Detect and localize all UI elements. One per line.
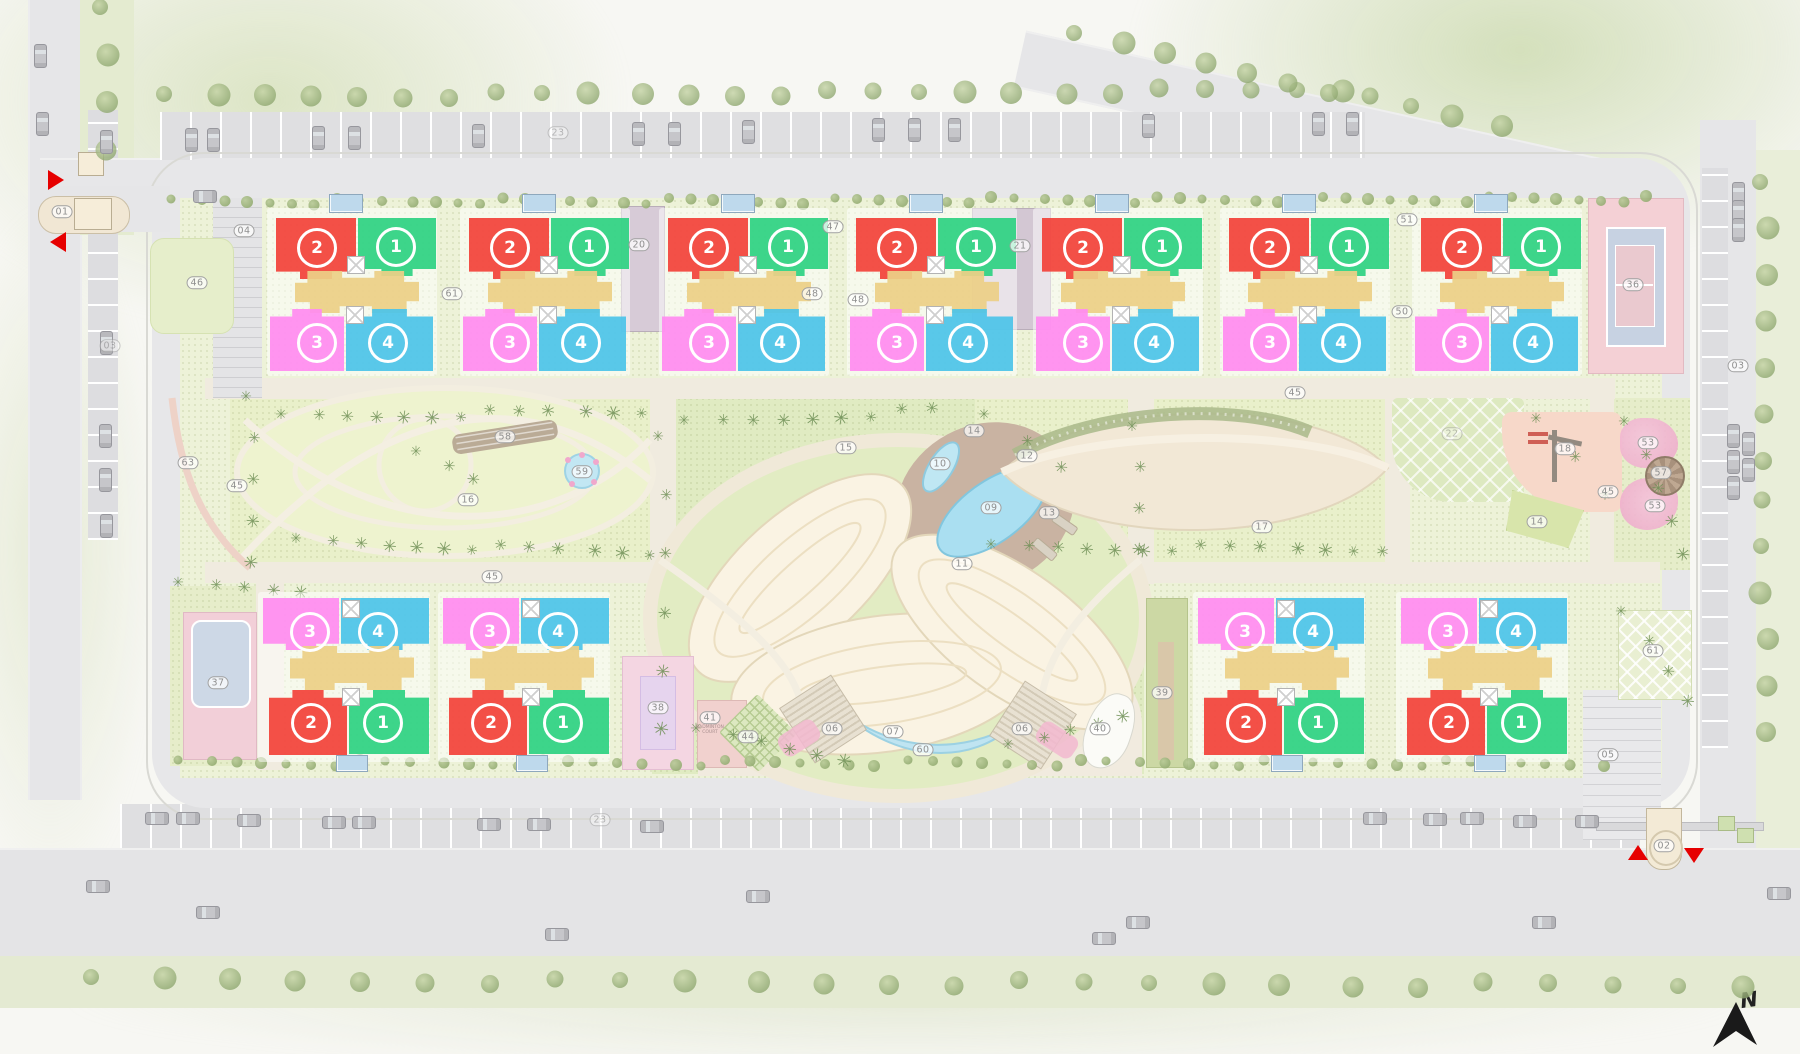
map-label-48: 48 xyxy=(848,293,869,306)
bush-icon xyxy=(903,756,912,765)
bush-icon xyxy=(1318,192,1328,202)
car-icon xyxy=(1767,887,1791,900)
entrance-canopy xyxy=(336,755,368,772)
palm-tree-icon: ✳ xyxy=(712,410,734,431)
map-label-21: 21 xyxy=(1010,239,1031,252)
stair-core xyxy=(1480,600,1498,618)
map-label-37: 37 xyxy=(208,676,229,689)
tree-icon xyxy=(1203,973,1226,996)
palm-tree-icon: ✳ xyxy=(419,404,446,430)
bush-icon xyxy=(1027,760,1037,770)
bush-icon xyxy=(896,195,908,207)
entrance-canopy xyxy=(1282,194,1316,213)
car-icon xyxy=(1532,916,1556,929)
map-label-13: 13 xyxy=(1039,506,1060,519)
stair-core xyxy=(1113,256,1131,274)
car-icon xyxy=(185,128,198,152)
palm-tree-icon: ✳ xyxy=(545,538,569,560)
bush-icon xyxy=(775,197,786,208)
palm-tree-icon: ✳ xyxy=(1221,535,1239,557)
palm-tree-icon: ✳ xyxy=(234,580,254,595)
stair-core xyxy=(342,688,360,706)
palm-tree-icon: ✳ xyxy=(743,412,763,427)
bush-icon xyxy=(686,193,697,204)
bush-icon xyxy=(745,756,756,767)
entrance-canopy xyxy=(1474,194,1508,213)
bush-icon xyxy=(1159,758,1170,769)
palm-tree-icon: ✳ xyxy=(923,397,941,419)
palm-tree-icon: ✳ xyxy=(1048,540,1068,555)
car-icon xyxy=(36,112,49,136)
stair-core xyxy=(347,256,365,274)
tree-icon xyxy=(879,975,899,995)
tree-icon xyxy=(350,972,370,992)
palm-tree-icon: ✳ xyxy=(240,389,252,405)
palm-tree-icon: ✳ xyxy=(978,407,990,423)
bush-icon xyxy=(976,757,988,769)
unit-badge-3: 3 xyxy=(490,323,530,363)
car-icon xyxy=(1727,476,1740,500)
palm-tree-icon: ✳ xyxy=(1060,723,1080,738)
palm-tree-icon: ✳ xyxy=(1129,457,1151,478)
site-master-plan: N ✳✳✳✳✳✳✳✳✳✳✳✳✳✳✳✳✳✳✳✳✳✳✳✳✳✳✳✳✳✳✳✳✳✳✳✳✳✳… xyxy=(0,0,1800,1054)
map-label-38: 38 xyxy=(648,701,669,714)
bush-icon xyxy=(231,757,242,768)
map-label-02: 02 xyxy=(1654,839,1675,852)
map-label-06: 06 xyxy=(1012,722,1033,735)
unit-badge-1: 1 xyxy=(956,227,996,267)
entrance-arrow-icon xyxy=(1628,845,1648,860)
map-label-16: 16 xyxy=(458,493,479,506)
tree-icon xyxy=(1757,675,1778,696)
map-label-50: 50 xyxy=(1392,305,1413,318)
palm-tree-icon: ✳ xyxy=(1074,536,1098,561)
palm-tree-icon: ✳ xyxy=(337,408,357,423)
bush-icon xyxy=(874,194,885,205)
unit-badge-3: 3 xyxy=(689,323,729,363)
tree-icon xyxy=(301,86,322,107)
entrance-canopy xyxy=(1095,194,1129,213)
tree-icon xyxy=(814,973,835,994)
entrance-canopy xyxy=(721,194,755,213)
car-icon xyxy=(1126,916,1150,929)
map-label-58: 58 xyxy=(495,430,516,443)
bush-icon xyxy=(942,197,952,207)
bush-icon xyxy=(1062,195,1073,206)
car-icon xyxy=(312,126,325,150)
car-icon xyxy=(1575,815,1599,828)
tree-icon xyxy=(92,0,108,15)
unit-badge-1: 1 xyxy=(768,227,808,267)
tree-icon xyxy=(1757,628,1779,650)
car-icon xyxy=(527,818,551,831)
car-icon xyxy=(207,128,220,152)
tree-icon xyxy=(1268,974,1290,996)
palm-tree-icon: ✳ xyxy=(351,535,371,550)
palm-tree-icon: ✳ xyxy=(243,427,265,448)
palm-tree-icon: ✳ xyxy=(452,410,470,425)
map-label-07: 07 xyxy=(883,725,904,738)
map-label-23: 23 xyxy=(590,813,611,826)
stair-core xyxy=(1277,600,1295,618)
bush-icon xyxy=(1152,192,1163,203)
palm-tree-icon: ✳ xyxy=(1648,480,1668,495)
bush-icon xyxy=(1135,757,1145,767)
entrance-canopy xyxy=(1271,755,1303,772)
stair-core xyxy=(522,600,540,618)
stair-core xyxy=(522,688,540,706)
tree-icon xyxy=(1670,978,1686,994)
tree-icon xyxy=(725,86,745,106)
entrance-canopy xyxy=(1474,755,1506,772)
palm-tree-icon: ✳ xyxy=(1372,542,1393,560)
stair-core xyxy=(1277,688,1295,706)
tree-icon xyxy=(1403,98,1419,114)
palm-tree-icon: ✳ xyxy=(655,484,677,505)
stair-core xyxy=(1492,256,1510,274)
unit-badge-1: 1 xyxy=(376,227,416,267)
map-label-03: 03 xyxy=(1728,359,1749,372)
palm-tree-icon: ✳ xyxy=(985,537,997,553)
entrance-arrow-icon xyxy=(1684,848,1704,863)
bush-icon xyxy=(952,757,963,768)
unit-badge-4: 4 xyxy=(1496,612,1536,652)
tree-icon xyxy=(1343,976,1364,997)
palm-tree-icon: ✳ xyxy=(808,742,826,765)
tree-icon xyxy=(1320,84,1338,102)
car-icon xyxy=(1742,458,1755,482)
map-label-63: 63 xyxy=(178,456,199,469)
map-label-10: 10 xyxy=(930,457,951,470)
stair-core xyxy=(739,256,757,274)
palm-tree-icon: ✳ xyxy=(1284,537,1309,558)
bush-icon xyxy=(1550,193,1562,205)
bush-icon xyxy=(928,756,938,766)
map-label-20: 20 xyxy=(629,238,650,251)
bush-icon xyxy=(1362,193,1374,205)
bush-icon xyxy=(1461,196,1473,208)
unit-badge-2: 2 xyxy=(1250,228,1290,268)
car-icon xyxy=(322,816,346,829)
car-icon xyxy=(1742,432,1755,456)
tree-icon xyxy=(1756,264,1778,286)
tree-icon xyxy=(1242,81,1259,98)
bush-icon xyxy=(1574,196,1583,205)
stair-core xyxy=(1491,306,1509,324)
unit-badge-2: 2 xyxy=(490,228,530,268)
tree-icon xyxy=(154,967,177,990)
car-icon xyxy=(1460,812,1484,825)
unit-badge-1: 1 xyxy=(1142,227,1182,267)
unit-badge-1: 1 xyxy=(1298,703,1338,743)
bush-icon xyxy=(830,193,839,202)
bush-icon xyxy=(1640,190,1652,202)
tree-icon xyxy=(1279,74,1298,93)
palm-tree-icon: ✳ xyxy=(1106,538,1124,561)
bush-icon xyxy=(1528,193,1539,204)
map-label-60: 60 xyxy=(913,743,934,756)
palm-tree-icon: ✳ xyxy=(1126,419,1138,435)
palm-tree-icon: ✳ xyxy=(510,400,528,422)
tree-icon xyxy=(83,969,99,985)
entrance-arrow-icon xyxy=(50,232,66,252)
bush-icon xyxy=(408,196,419,207)
palm-tree-icon: ✳ xyxy=(290,531,302,547)
car-icon xyxy=(1727,424,1740,448)
map-label-41: 41 xyxy=(700,711,721,724)
bush-icon xyxy=(377,196,387,206)
palm-tree-icon: ✳ xyxy=(602,398,625,424)
palm-tree-icon: ✳ xyxy=(771,406,795,431)
palm-tree-icon: ✳ xyxy=(1346,540,1363,559)
unit-badge-1: 1 xyxy=(569,227,609,267)
unit-badge-2: 2 xyxy=(877,228,917,268)
tree-icon xyxy=(772,87,791,106)
unit-badge-3: 3 xyxy=(1063,323,1103,363)
palm-tree-icon: ✳ xyxy=(410,444,422,460)
unit-badge-2: 2 xyxy=(1063,228,1103,268)
bush-icon xyxy=(174,756,183,765)
tree-icon xyxy=(96,91,118,113)
car-icon xyxy=(1727,450,1740,474)
tree-icon xyxy=(678,84,699,105)
tree-icon xyxy=(954,81,977,104)
car-icon xyxy=(100,130,113,154)
map-label-45: 45 xyxy=(1598,485,1619,498)
tree-icon xyxy=(1066,25,1082,41)
palm-tree-icon: ✳ xyxy=(1164,544,1182,559)
map-label-53: 53 xyxy=(1638,436,1659,449)
entrance-canopy xyxy=(909,194,943,213)
tree-icon xyxy=(1749,581,1772,604)
car-icon xyxy=(908,118,921,142)
palm-tree-icon: ✳ xyxy=(1659,508,1683,533)
map-label-15: 15 xyxy=(836,441,857,454)
bush-icon xyxy=(1130,198,1140,208)
tree-icon xyxy=(1056,83,1077,104)
unit-badge-2: 2 xyxy=(689,228,729,268)
bush-icon xyxy=(637,759,648,770)
palm-tree-icon: ✳ xyxy=(240,508,264,533)
unit-badge-4: 4 xyxy=(1513,323,1553,363)
map-label-57: 57 xyxy=(1651,466,1672,479)
map-label-61: 61 xyxy=(442,287,463,300)
palm-tree-icon: ✳ xyxy=(1247,536,1271,558)
stair-core xyxy=(1299,306,1317,324)
palm-tree-icon: ✳ xyxy=(652,599,676,624)
bush-icon xyxy=(1598,760,1610,772)
tree-icon xyxy=(1754,452,1772,470)
entrance-arrow-icon xyxy=(48,170,64,190)
car-icon xyxy=(352,816,376,829)
tree-icon xyxy=(481,975,499,993)
tree-icon xyxy=(219,968,241,990)
palm-tree-icon: ✳ xyxy=(1674,542,1692,565)
unit-badge-4: 4 xyxy=(760,323,800,363)
unit-badge-4: 4 xyxy=(1134,323,1174,363)
unit-badge-3: 3 xyxy=(470,612,510,652)
unit-badge-3: 3 xyxy=(1225,612,1265,652)
tree-icon xyxy=(674,970,697,993)
palm-tree-icon: ✳ xyxy=(464,543,482,558)
tree-icon xyxy=(1196,53,1217,74)
bush-icon xyxy=(1220,195,1230,205)
tree-icon xyxy=(1010,971,1028,989)
unit-badge-1: 1 xyxy=(363,703,403,743)
palm-tree-icon: ✳ xyxy=(1658,663,1678,678)
tree-icon xyxy=(818,81,836,99)
bush-icon xyxy=(720,755,730,765)
bush-icon xyxy=(642,200,651,209)
car-icon xyxy=(746,890,770,903)
bush-icon xyxy=(769,756,781,768)
palm-tree-icon: ✳ xyxy=(491,534,511,556)
map-label-51: 51 xyxy=(1397,213,1418,226)
palm-tree-icon: ✳ xyxy=(1618,414,1630,430)
bush-icon xyxy=(207,756,217,766)
unit-badge-2: 2 xyxy=(1442,228,1482,268)
palm-tree-icon: ✳ xyxy=(633,402,650,421)
tree-icon xyxy=(208,83,231,106)
bush-icon xyxy=(565,196,575,206)
tree-icon xyxy=(254,84,276,106)
map-label-04: 04 xyxy=(234,224,255,237)
palm-tree-icon: ✳ xyxy=(863,409,881,424)
map-label-14: 14 xyxy=(964,424,985,437)
map-label-17: 17 xyxy=(1252,520,1273,533)
palm-tree-icon: ✳ xyxy=(242,550,260,573)
bush-icon xyxy=(707,194,719,206)
bush-icon xyxy=(985,191,997,203)
palm-tree-icon: ✳ xyxy=(1314,536,1337,562)
car-icon xyxy=(545,928,569,941)
bush-icon xyxy=(1102,757,1111,766)
palm-tree-icon: ✳ xyxy=(1191,534,1211,556)
tree-icon xyxy=(1474,973,1493,992)
unit-badge-1: 1 xyxy=(1501,703,1541,743)
unit-badge-3: 3 xyxy=(290,612,330,652)
map-label-40: 40 xyxy=(1090,722,1111,735)
tree-icon xyxy=(394,88,413,107)
tree-icon xyxy=(1605,976,1622,993)
bush-icon xyxy=(1417,762,1426,771)
car-icon xyxy=(948,118,961,142)
tree-icon xyxy=(285,970,306,991)
map-label-01: 01 xyxy=(52,205,73,218)
car-icon xyxy=(632,122,645,146)
bush-icon xyxy=(1174,192,1186,204)
stair-core xyxy=(1480,688,1498,706)
palm-tree-icon: ✳ xyxy=(892,398,912,420)
palm-tree-icon: ✳ xyxy=(308,405,330,426)
tree-icon xyxy=(632,83,654,105)
bush-icon xyxy=(868,760,880,772)
bush-icon xyxy=(1386,195,1395,204)
bush-icon xyxy=(1366,759,1377,770)
tree-icon xyxy=(1753,538,1769,554)
map-label-caption: BADMINTON COURT xyxy=(690,725,730,735)
bush-icon xyxy=(1234,761,1244,771)
tree-icon xyxy=(748,971,770,993)
palm-tree-icon: ✳ xyxy=(610,539,633,565)
unit-badge-2: 2 xyxy=(297,228,337,268)
bush-icon xyxy=(612,758,622,768)
bush-icon xyxy=(1340,192,1351,203)
bush-icon xyxy=(795,759,804,768)
stair-core xyxy=(926,306,944,324)
tree-icon xyxy=(1113,32,1136,55)
tree-icon xyxy=(1757,217,1780,240)
stair-core xyxy=(927,256,945,274)
tree-icon xyxy=(534,85,550,101)
palm-tree-icon: ✳ xyxy=(652,429,664,445)
bush-icon xyxy=(1507,192,1517,202)
tree-icon xyxy=(347,87,367,107)
palm-tree-icon: ✳ xyxy=(377,532,401,557)
unit-badge-3: 3 xyxy=(877,323,917,363)
tree-icon xyxy=(576,82,599,105)
tree-icon xyxy=(865,82,882,99)
unit-badge-2: 2 xyxy=(471,703,511,743)
palm-tree-icon: ✳ xyxy=(678,413,690,429)
palm-tree-icon: ✳ xyxy=(1675,688,1699,713)
map-label-45: 45 xyxy=(1285,386,1306,399)
car-icon xyxy=(640,820,664,833)
car-icon xyxy=(34,44,47,68)
tree-icon xyxy=(487,84,504,101)
palm-tree-icon: ✳ xyxy=(1615,604,1627,620)
tree-icon xyxy=(1000,82,1022,104)
map-label-61: 61 xyxy=(1643,644,1664,657)
palm-tree-icon: ✳ xyxy=(1018,535,1040,556)
map-label-03: 03 xyxy=(100,339,121,352)
bush-icon xyxy=(430,196,442,208)
palm-tree-icon: ✳ xyxy=(777,735,801,760)
bush-icon xyxy=(1430,196,1441,207)
bush-icon xyxy=(670,759,682,771)
car-icon xyxy=(176,812,200,825)
unit-badge-4: 4 xyxy=(368,323,408,363)
palm-tree-icon: ✳ xyxy=(1002,737,1014,753)
bush-icon xyxy=(696,762,705,771)
tree-icon xyxy=(156,86,172,102)
tree-icon xyxy=(945,977,964,996)
car-icon xyxy=(872,118,885,142)
palm-tree-icon: ✳ xyxy=(463,472,483,487)
tree-icon xyxy=(1103,84,1123,104)
entrance-canopy xyxy=(522,194,556,213)
palm-tree-icon: ✳ xyxy=(572,401,597,422)
tree-icon xyxy=(1408,978,1428,998)
map-label-46: 46 xyxy=(187,276,208,289)
bush-icon xyxy=(1051,761,1062,772)
palm-tree-icon: ✳ xyxy=(395,405,413,428)
palm-tree-icon: ✳ xyxy=(1033,727,1055,748)
palm-tree-icon: ✳ xyxy=(582,540,607,561)
map-label-12: 12 xyxy=(1017,449,1038,462)
bush-icon xyxy=(1408,195,1418,205)
map-label-23: 23 xyxy=(548,126,569,139)
tree-icon xyxy=(547,970,564,987)
palm-tree-icon: ✳ xyxy=(655,546,675,561)
tree-icon xyxy=(97,43,120,66)
map-label-59: 59 xyxy=(572,465,593,478)
tree-icon xyxy=(911,84,927,100)
bush-icon xyxy=(241,196,253,208)
tree-icon xyxy=(1754,491,1771,508)
entrance-canopy xyxy=(516,755,548,772)
tree-icon xyxy=(1441,105,1464,128)
